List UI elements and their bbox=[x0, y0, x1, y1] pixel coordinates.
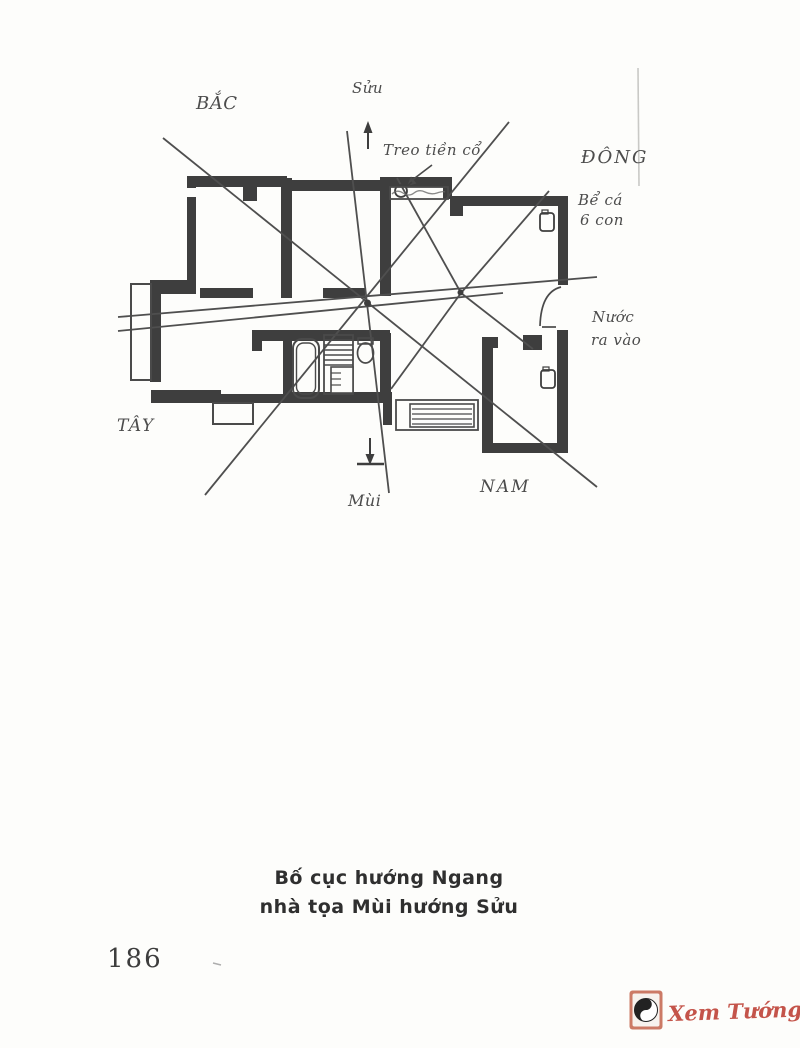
caption-line-2: nhà tọa Mùi hướng Sửu bbox=[239, 893, 539, 922]
north-arrow-icon bbox=[364, 121, 373, 149]
label-suu-direction: Sửu bbox=[352, 79, 383, 97]
label-fish-tank-2: 6 con bbox=[580, 211, 624, 229]
radiator-grill bbox=[396, 400, 478, 430]
page-number: 186 bbox=[107, 944, 163, 974]
label-north: BẮC bbox=[196, 93, 238, 114]
south-marker-icon bbox=[357, 438, 384, 465]
ink-speck bbox=[213, 963, 221, 965]
figure-caption: Bố cục hướng Ngang nhà tọa Mùi hướng Sửu bbox=[239, 864, 539, 922]
label-east: ĐÔNG bbox=[581, 147, 648, 168]
page-crease bbox=[638, 68, 639, 186]
label-hang-old-coins: Treo tiền cổ bbox=[383, 141, 481, 159]
watermark-text: Xem Tướng.net bbox=[668, 994, 800, 1025]
watermark: Xem Tướng.net bbox=[629, 990, 800, 1030]
bathtub bbox=[293, 339, 319, 398]
scanned-book-page: BẮC Sửu Treo tiền cổ ĐÔNG Bể cá 6 con Nư… bbox=[0, 0, 800, 1048]
center-point-west bbox=[364, 300, 371, 307]
label-mui-direction: Mùi bbox=[348, 491, 381, 510]
label-west: TÂY bbox=[117, 416, 155, 436]
fish-tank-icon bbox=[540, 210, 554, 231]
label-south: NAM bbox=[480, 477, 531, 497]
lower-balcony-box bbox=[213, 403, 253, 424]
door-arc bbox=[540, 287, 561, 327]
label-water-2: ra vào bbox=[591, 331, 641, 349]
center-point-east bbox=[458, 290, 464, 296]
caption-line-1: Bố cục hướng Ngang bbox=[239, 864, 539, 893]
label-water-1: Nước bbox=[592, 308, 634, 326]
label-fish-tank-1: Bể cá bbox=[578, 191, 623, 209]
balcony-box bbox=[131, 284, 151, 380]
yin-yang-logo-icon bbox=[629, 990, 663, 1030]
water-fixture-icon bbox=[541, 367, 555, 388]
